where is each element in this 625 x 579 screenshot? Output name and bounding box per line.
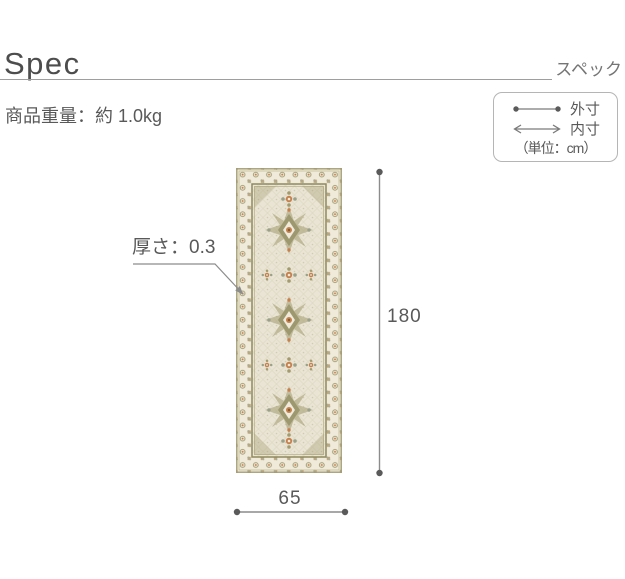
header-rule xyxy=(0,79,552,80)
legend-inner-label: 内寸 xyxy=(570,122,600,137)
inner-dimension-arrows-icon xyxy=(511,124,563,134)
legend-unit-label: （単位：cm） xyxy=(494,141,617,155)
legend-row-outer: 外寸 xyxy=(494,101,617,117)
thickness-leader-line xyxy=(130,258,250,300)
section-title: Spec xyxy=(4,48,81,79)
thickness-label: 厚さ：0.3 xyxy=(132,237,215,260)
outer-dimension-dots-icon xyxy=(511,104,563,114)
section-subtitle-japanese: スペック xyxy=(555,61,622,80)
spec-section: Spec スペック 商品重量：約 1.0kg 外寸 内寸 （単位：cm） xyxy=(0,0,625,579)
legend-row-inner: 内寸 xyxy=(494,121,617,137)
width-dimension-line xyxy=(230,504,355,520)
dimension-legend-box: 外寸 内寸 （単位：cm） xyxy=(493,92,618,162)
rug-product-image xyxy=(236,168,342,473)
height-value: 180 xyxy=(387,306,422,328)
product-weight-text: 商品重量：約 1.0kg xyxy=(5,102,162,128)
height-dimension-line xyxy=(371,165,388,480)
legend-outer-label: 外寸 xyxy=(570,102,600,117)
